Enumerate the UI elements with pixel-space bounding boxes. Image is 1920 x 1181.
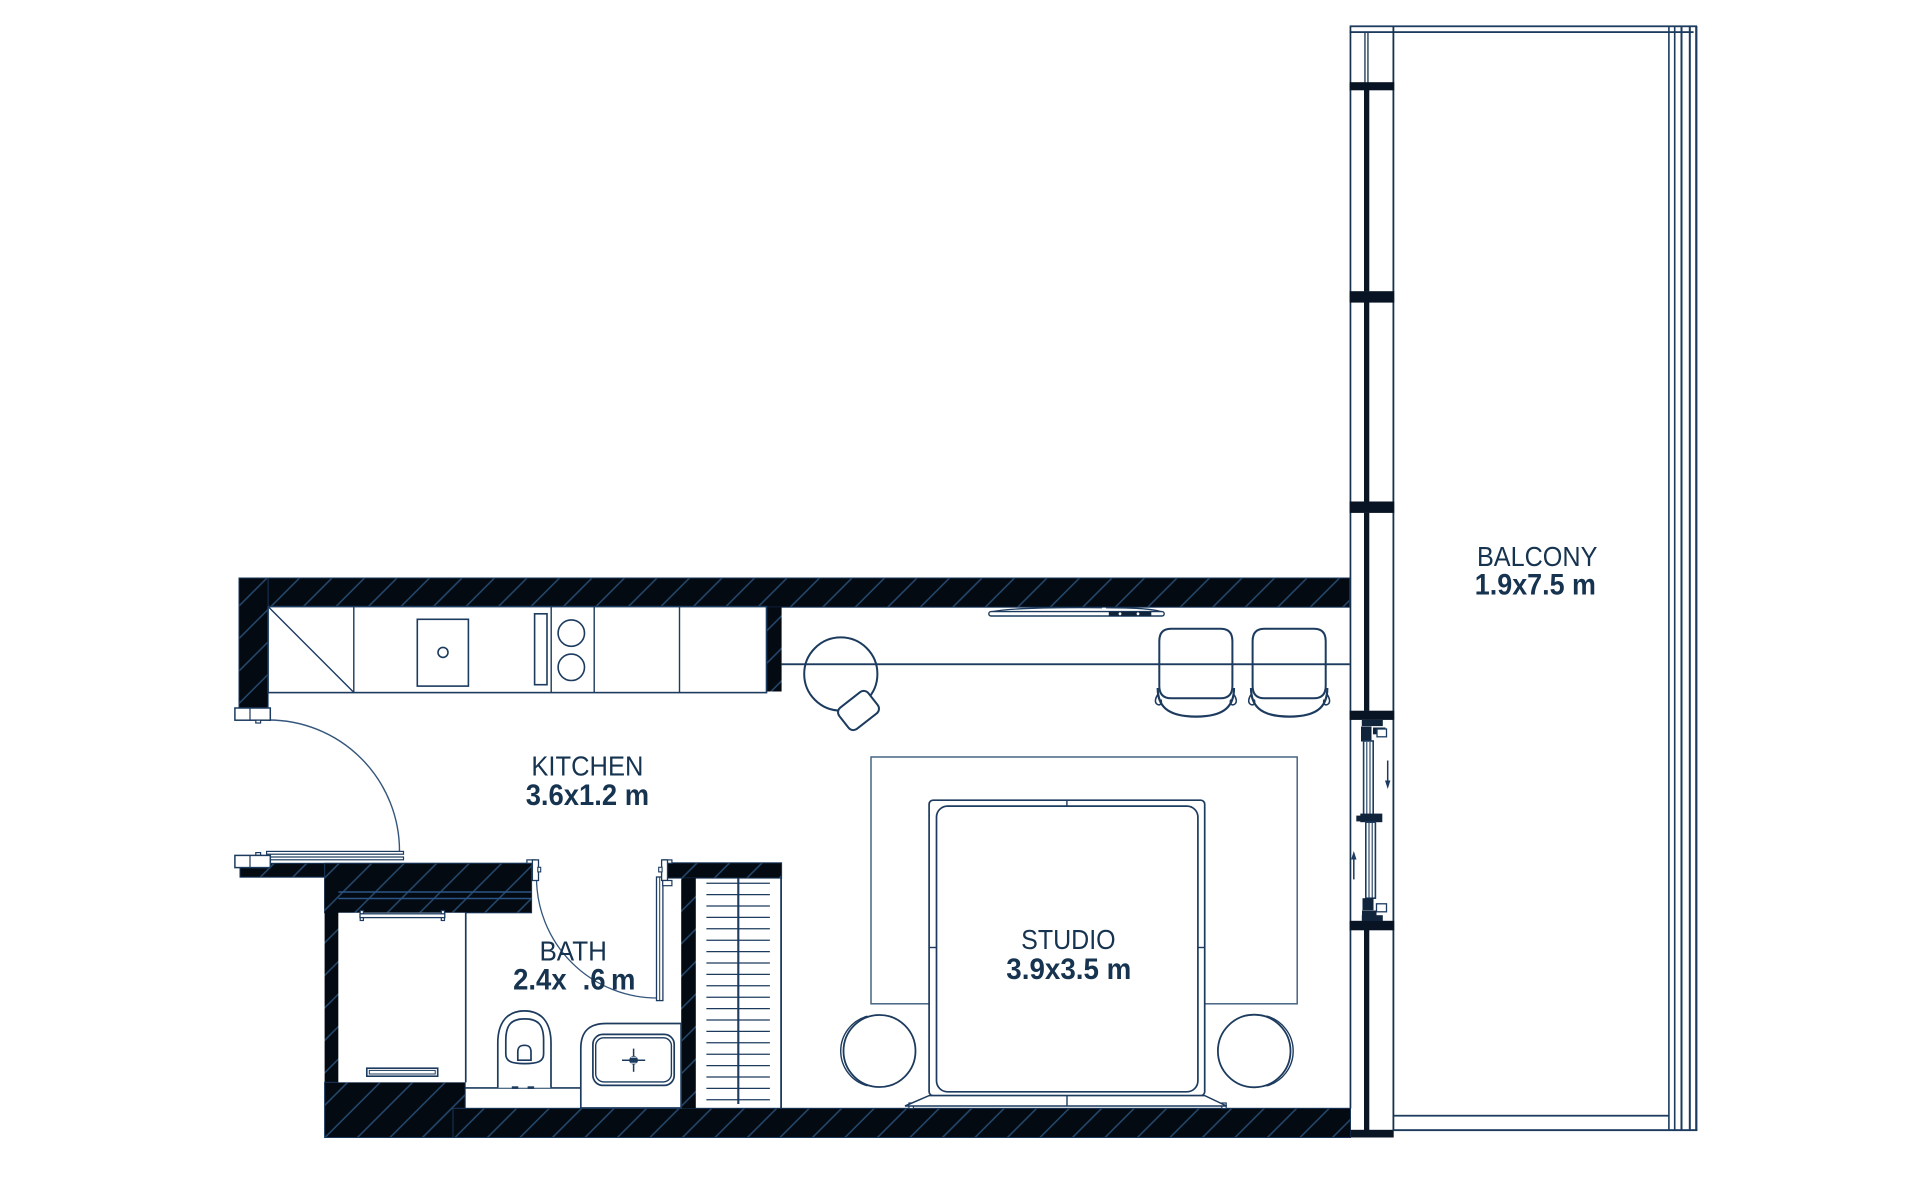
svg-text:KITCHEN: KITCHEN [531, 750, 643, 781]
svg-text:BATH: BATH [539, 936, 607, 967]
svg-text:3.9x3.5 m: 3.9x3.5 m [1006, 953, 1131, 986]
svg-text:3.6x1.2 m: 3.6x1.2 m [526, 779, 649, 812]
svg-text:STUDIO: STUDIO [1021, 924, 1116, 955]
svg-text:1.9x7.5 m: 1.9x7.5 m [1475, 569, 1596, 602]
svg-text:2.4x .6 m: 2.4x .6 m [513, 964, 635, 997]
